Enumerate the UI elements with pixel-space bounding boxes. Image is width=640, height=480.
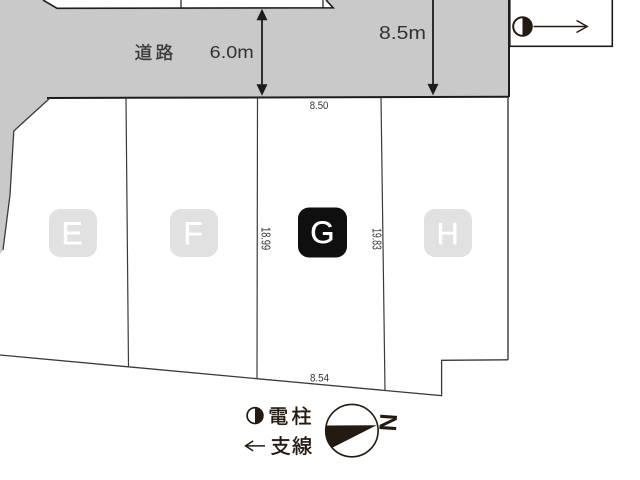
svg-text:19.83: 19.83 bbox=[370, 228, 384, 249]
svg-text:6.0m: 6.0m bbox=[210, 42, 254, 62]
svg-text:8.5m: 8.5m bbox=[379, 22, 426, 43]
svg-text:18.99: 18.99 bbox=[258, 227, 272, 250]
svg-text:8.54: 8.54 bbox=[310, 373, 329, 385]
svg-text:8.50: 8.50 bbox=[310, 100, 329, 112]
